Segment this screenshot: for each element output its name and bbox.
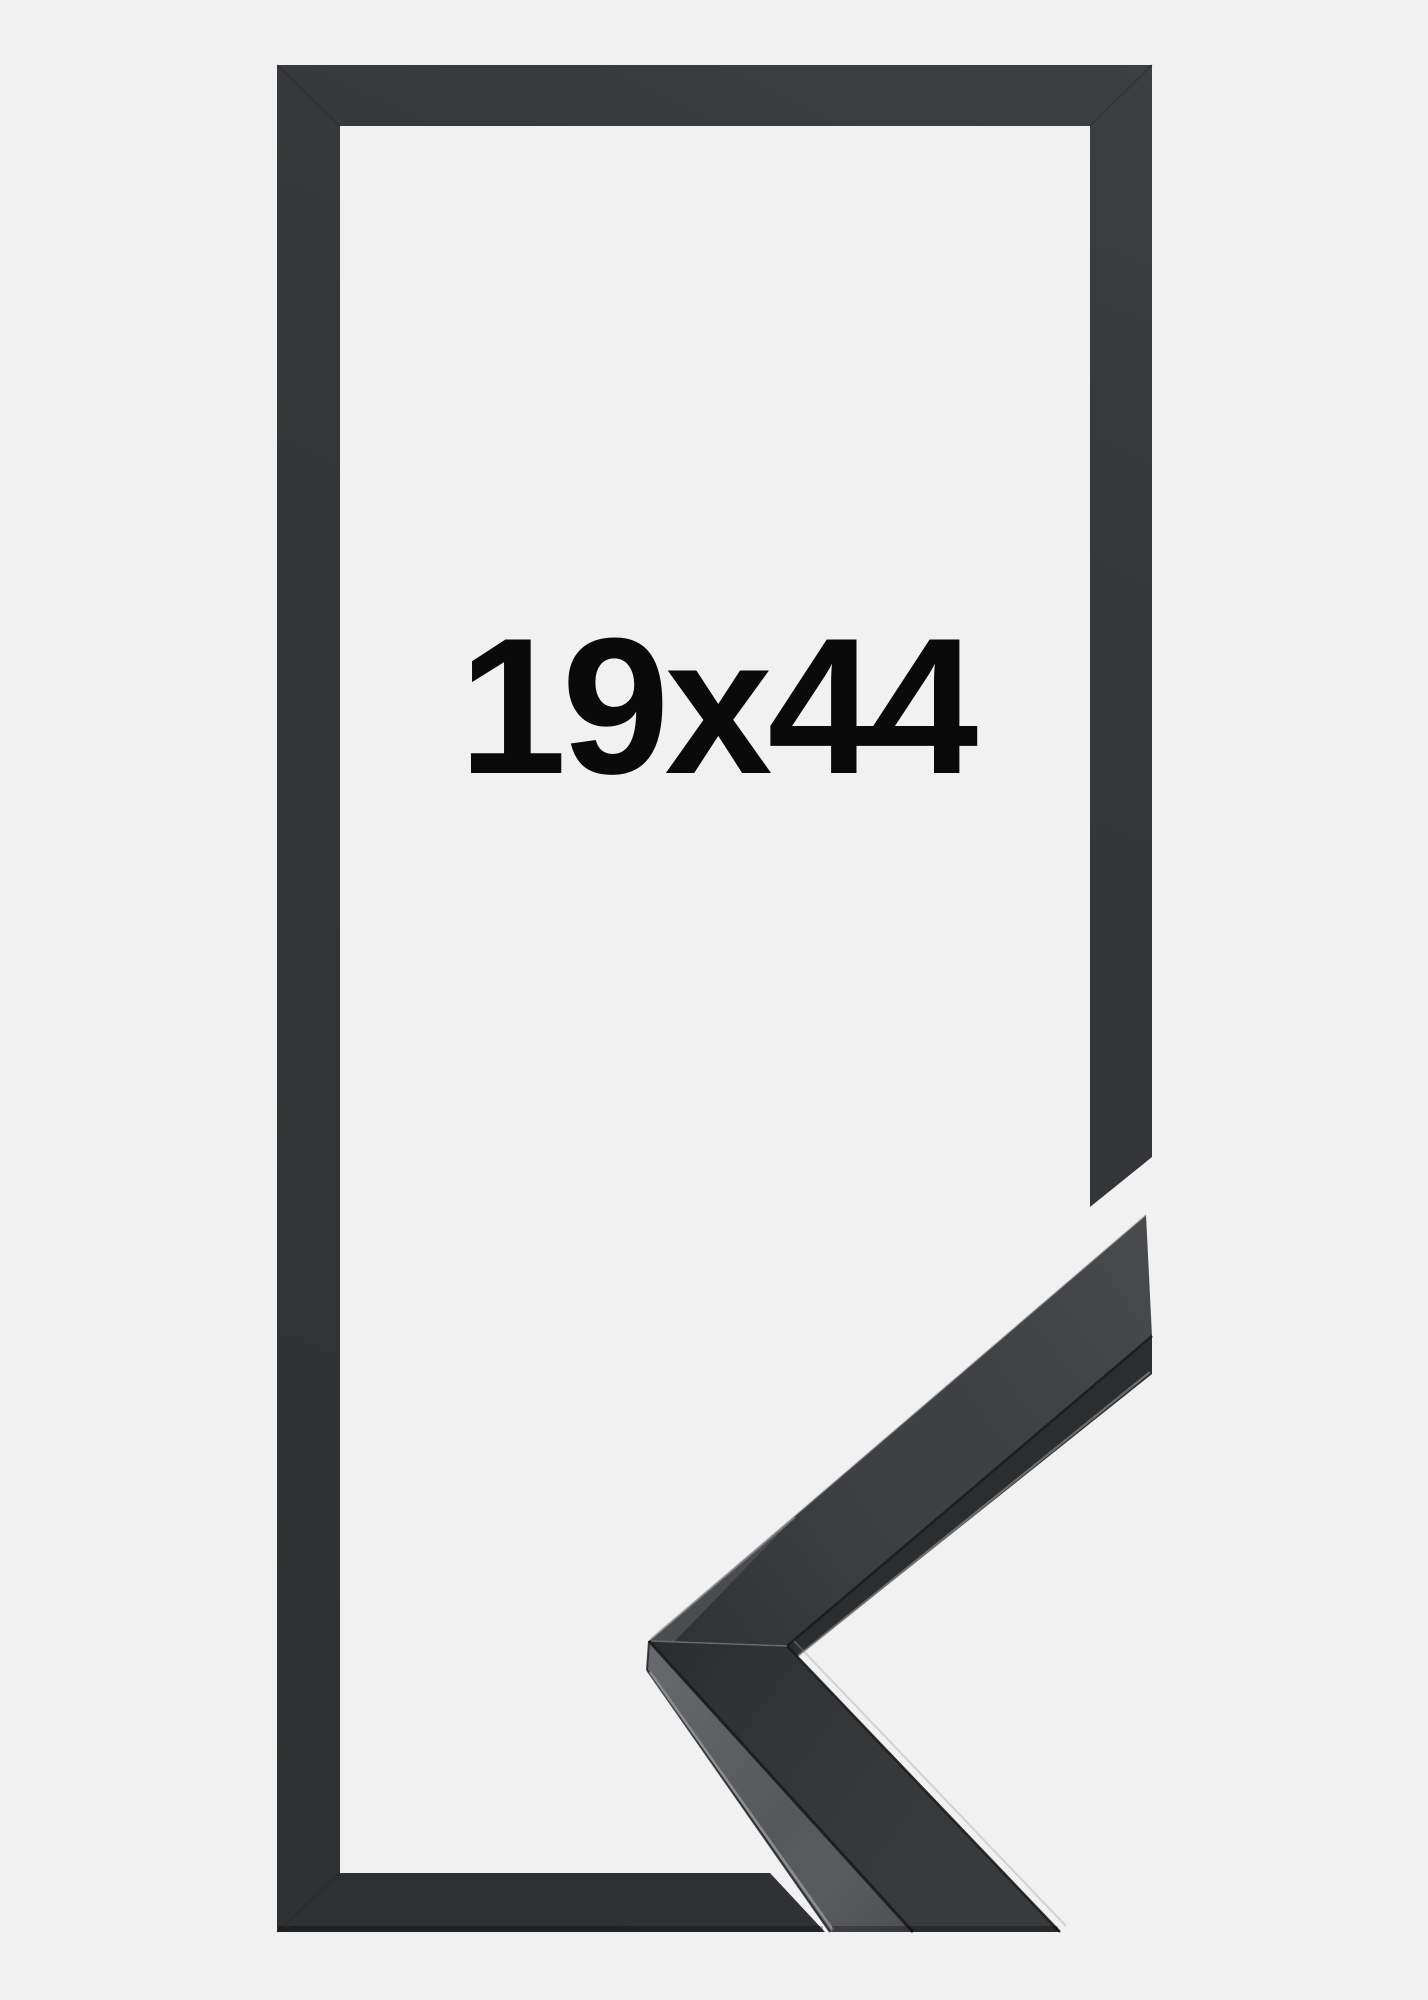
size-label: 19x44 [459,598,978,815]
product-photo: 19x44 [0,0,1428,2000]
frame-graphic: 19x44 [0,0,1428,2000]
bottom-edge-shadow-left [278,1926,823,1932]
bottom-edge-shadow-right [832,1926,1058,1932]
